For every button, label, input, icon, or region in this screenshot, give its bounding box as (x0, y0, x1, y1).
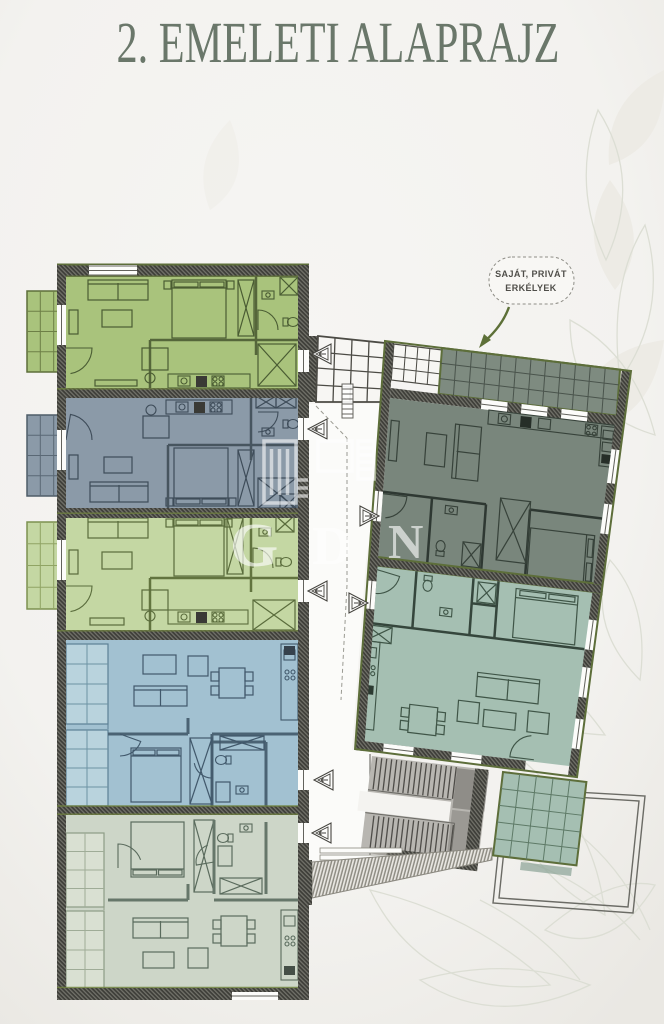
svg-text:ERKÉLYEK: ERKÉLYEK (505, 283, 556, 293)
svg-text:2. EMELETI ALAPRAJZ: 2. EMELETI ALAPRAJZ (117, 10, 560, 75)
svg-text:N: N (388, 514, 423, 569)
svg-text:D: D (312, 515, 352, 576)
svg-text:G: G (230, 512, 278, 580)
svg-text:SAJÁT, PRIVÁT: SAJÁT, PRIVÁT (495, 269, 567, 279)
